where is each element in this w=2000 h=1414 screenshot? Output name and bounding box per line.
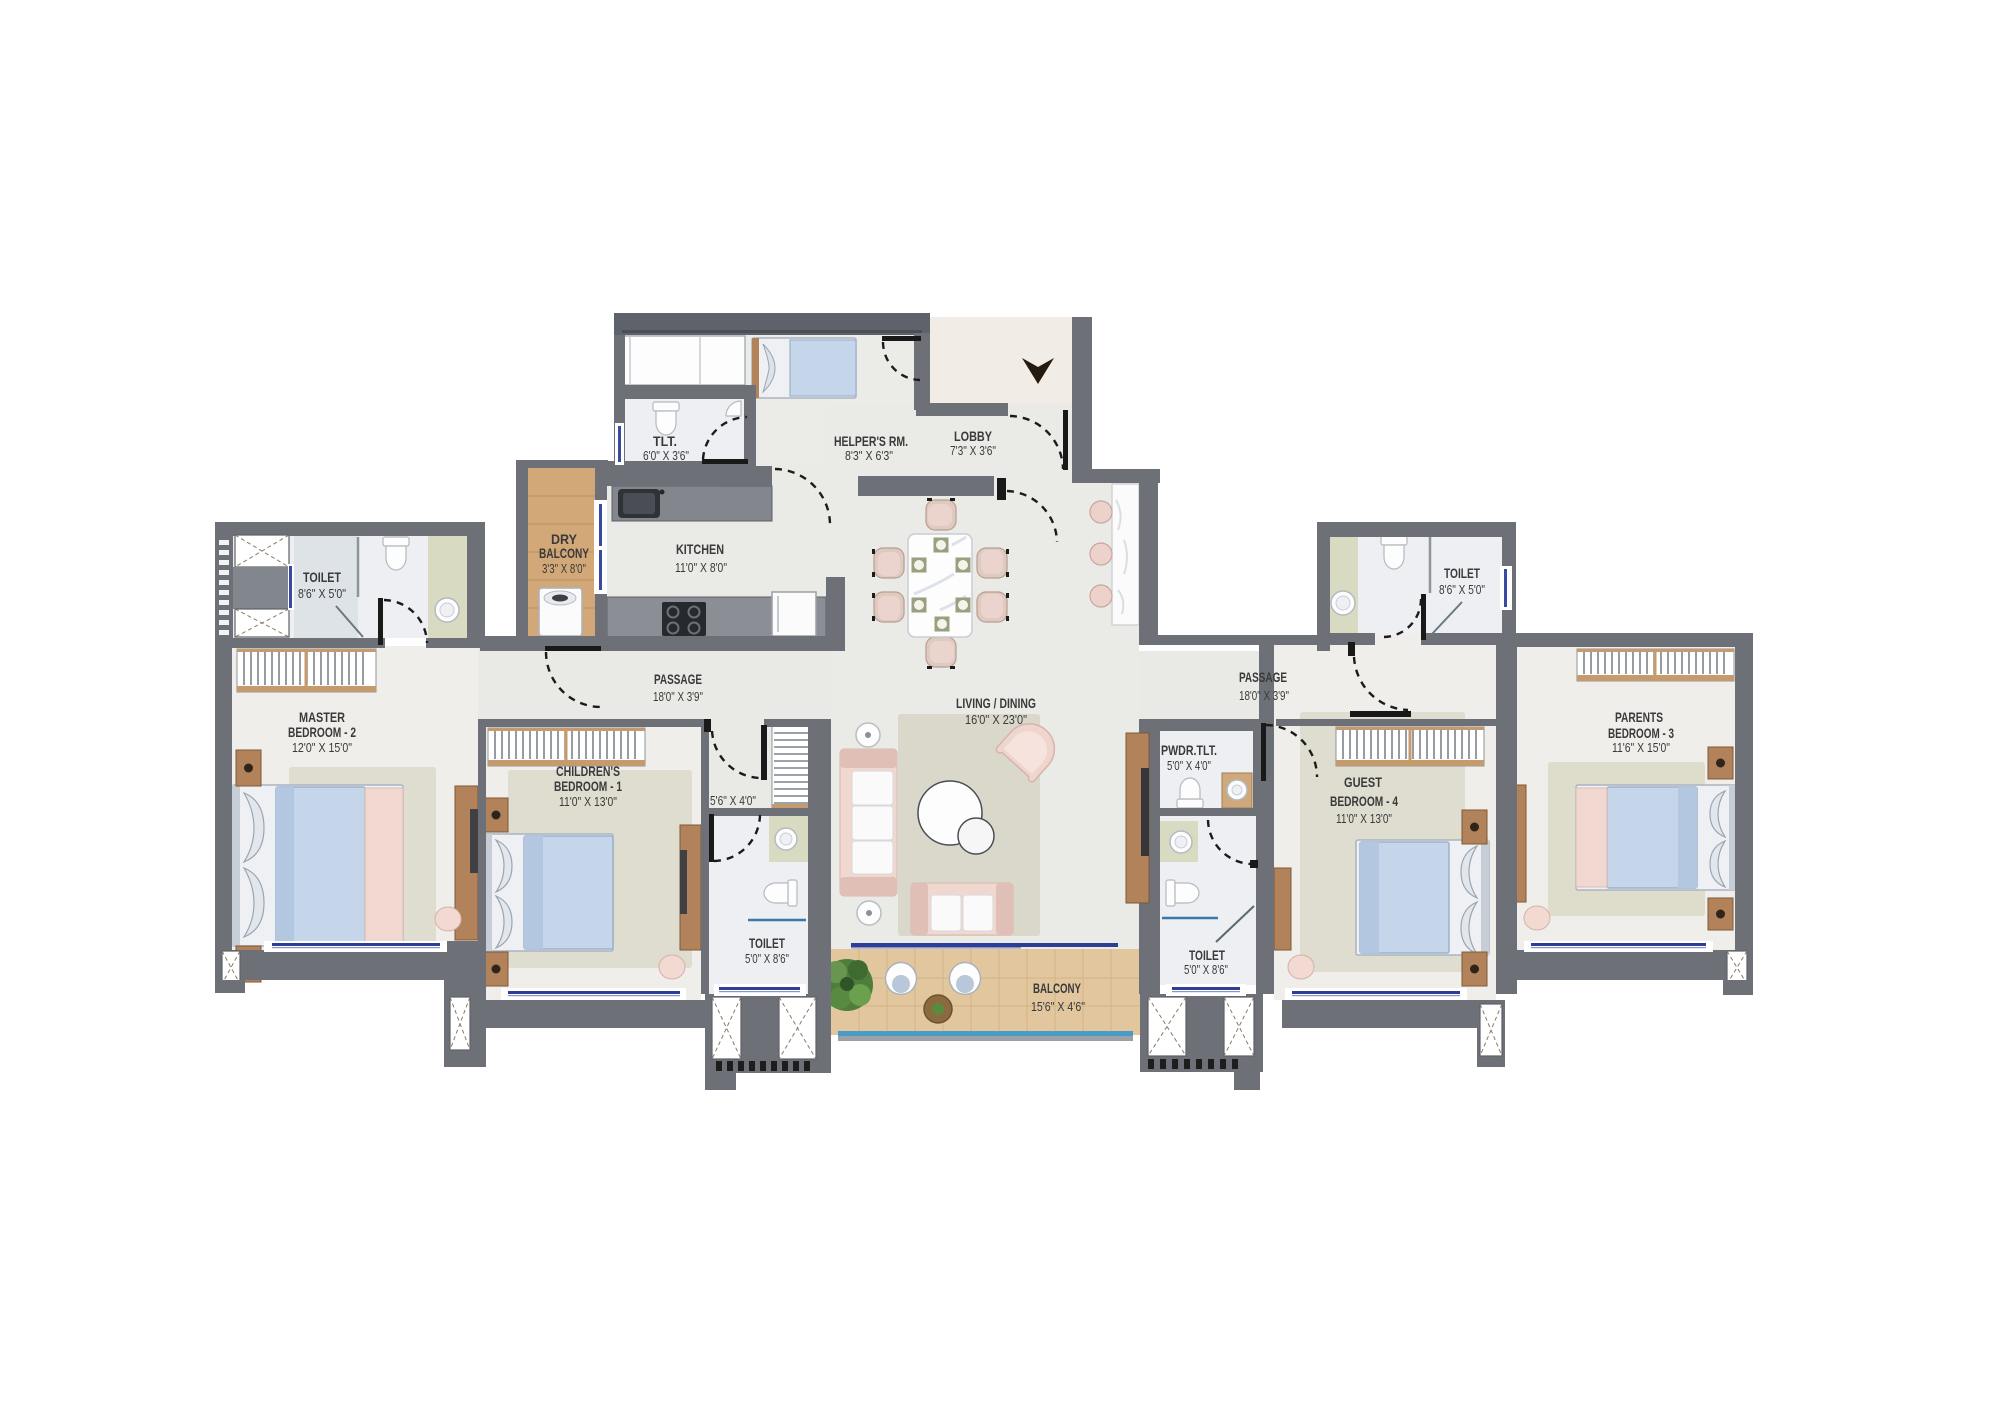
svg-text:3'3" X 8'0": 3'3" X 8'0" bbox=[542, 561, 586, 576]
svg-text:PARENTS: PARENTS bbox=[1615, 709, 1663, 725]
svg-text:15'6" X 4'6": 15'6" X 4'6" bbox=[1031, 999, 1085, 1014]
svg-text:TOILET: TOILET bbox=[749, 935, 785, 951]
svg-text:BALCONY: BALCONY bbox=[539, 545, 589, 561]
svg-text:12'0" X 15'0": 12'0" X 15'0" bbox=[292, 740, 352, 755]
svg-text:6'0" X 3'6": 6'0" X 3'6" bbox=[643, 448, 689, 463]
svg-text:BEDROOM - 3: BEDROOM - 3 bbox=[1608, 725, 1674, 741]
svg-text:LIVING / DINING: LIVING / DINING bbox=[956, 695, 1036, 711]
svg-text:18'0" X 3'9": 18'0" X 3'9" bbox=[1239, 688, 1289, 703]
svg-text:7'3" X 3'6": 7'3" X 3'6" bbox=[950, 443, 996, 458]
svg-text:TLT.: TLT. bbox=[653, 433, 677, 449]
svg-text:18'0" X 3'9": 18'0" X 3'9" bbox=[653, 689, 703, 704]
svg-text:8'6" X 5'0": 8'6" X 5'0" bbox=[1439, 582, 1485, 597]
svg-text:8'3" X 6'3": 8'3" X 6'3" bbox=[845, 448, 893, 463]
svg-text:LOBBY: LOBBY bbox=[954, 428, 993, 444]
svg-text:TOILET: TOILET bbox=[1189, 947, 1225, 963]
svg-text:PASSAGE: PASSAGE bbox=[1239, 669, 1287, 685]
svg-text:BALCONY: BALCONY bbox=[1033, 980, 1081, 996]
svg-text:8'6" X 5'0": 8'6" X 5'0" bbox=[298, 586, 346, 601]
svg-text:BEDROOM - 1: BEDROOM - 1 bbox=[554, 778, 622, 794]
svg-text:11'6" X 15'0": 11'6" X 15'0" bbox=[1612, 740, 1670, 755]
svg-text:PWDR.TLT.: PWDR.TLT. bbox=[1161, 742, 1217, 758]
svg-text:KITCHEN: KITCHEN bbox=[676, 541, 724, 557]
svg-text:CHILDREN'S: CHILDREN'S bbox=[556, 763, 620, 779]
svg-text:TOILET: TOILET bbox=[303, 569, 341, 585]
svg-text:11'0" X 8'0": 11'0" X 8'0" bbox=[675, 560, 727, 575]
svg-text:TOILET: TOILET bbox=[1444, 565, 1480, 581]
svg-text:BEDROOM - 2: BEDROOM - 2 bbox=[288, 724, 356, 740]
svg-text:5'0" X 8'6": 5'0" X 8'6" bbox=[745, 951, 789, 966]
svg-text:PASSAGE: PASSAGE bbox=[654, 671, 702, 687]
svg-text:BEDROOM - 4: BEDROOM - 4 bbox=[1330, 793, 1398, 809]
svg-text:11'0" X 13'0": 11'0" X 13'0" bbox=[559, 794, 617, 809]
svg-text:HELPER'S RM.: HELPER'S RM. bbox=[834, 433, 908, 449]
svg-text:MASTER: MASTER bbox=[299, 709, 345, 725]
svg-text:5'6" X 4'0": 5'6" X 4'0" bbox=[710, 793, 756, 808]
svg-text:5'0" X 4'0": 5'0" X 4'0" bbox=[1167, 758, 1211, 773]
svg-text:5'0" X 8'6": 5'0" X 8'6" bbox=[1184, 962, 1228, 977]
svg-text:11'0" X 13'0": 11'0" X 13'0" bbox=[1336, 811, 1392, 826]
svg-text:GUEST: GUEST bbox=[1344, 774, 1382, 790]
svg-text:16'0" X 23'0": 16'0" X 23'0" bbox=[965, 712, 1027, 727]
